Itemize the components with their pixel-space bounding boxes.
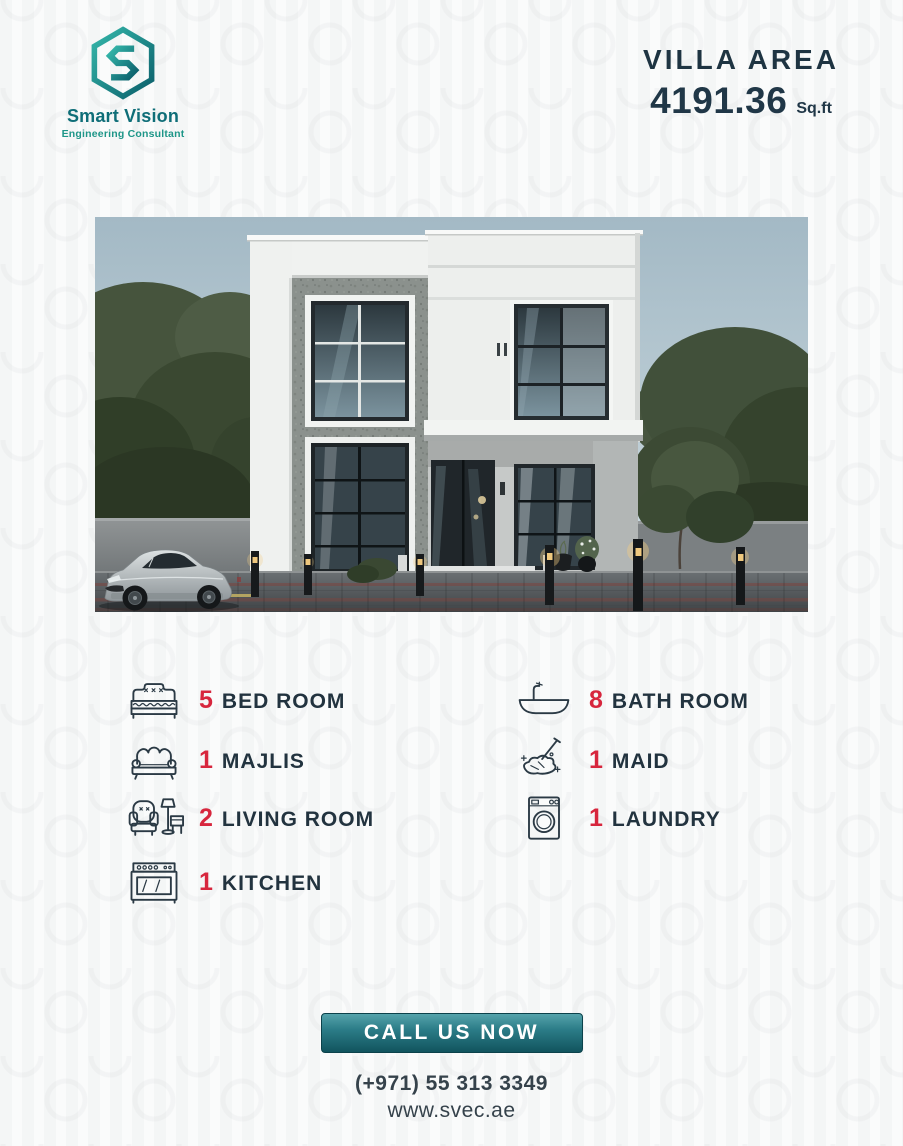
company-logo: Smart Vision Engineering Consultant xyxy=(45,24,201,140)
feature-living-room: 2 LIVING ROOM xyxy=(124,791,374,845)
website-url: www.svec.ae xyxy=(0,1099,903,1123)
villa-area-unit: Sq.ft xyxy=(796,100,832,118)
villa-photo xyxy=(95,217,808,612)
bathtub-icon xyxy=(514,674,574,726)
feature-count: 8 xyxy=(589,686,603,715)
flyer-page: Smart Vision Engineering Consultant VILL… xyxy=(0,0,903,1146)
villa-render xyxy=(95,217,808,612)
feature-kitchen: 1 KITCHEN xyxy=(124,855,322,909)
feature-label: MAID xyxy=(612,750,670,774)
sofa-icon xyxy=(124,734,184,786)
villa-building xyxy=(247,230,643,579)
hexagon-s-logo-icon xyxy=(88,24,158,102)
feature-label: LIVING ROOM xyxy=(222,808,374,832)
feature-label: MAJLIS xyxy=(222,750,305,774)
stove-icon xyxy=(124,856,184,908)
feature-label: KITCHEN xyxy=(222,872,322,896)
phone-number: (+971) 55 313 3349 xyxy=(0,1072,903,1096)
feature-maid: 1 MAID xyxy=(514,733,670,787)
feature-bath-room: 8 BATH ROOM xyxy=(514,673,749,727)
feature-count: 1 xyxy=(589,746,603,775)
bed-icon xyxy=(124,674,184,726)
feature-label: BED ROOM xyxy=(222,690,346,714)
call-us-now-button[interactable]: CALL US NOW xyxy=(321,1013,583,1053)
feature-label: LAUNDRY xyxy=(612,808,721,832)
villa-area-block: VILLA AREA 4191.36 Sq.ft xyxy=(611,44,871,122)
feature-majlis: 1 MAJLIS xyxy=(124,733,305,787)
brand-tagline: Engineering Consultant xyxy=(45,128,201,140)
feature-count: 2 xyxy=(199,804,213,833)
feature-label: BATH ROOM xyxy=(612,690,749,714)
feature-count: 1 xyxy=(199,868,213,897)
villa-area-value: 4191.36 xyxy=(650,80,787,122)
washing-machine-icon xyxy=(514,792,574,844)
villa-area-label: VILLA AREA xyxy=(611,44,871,76)
feature-count: 5 xyxy=(199,686,213,715)
mop-icon xyxy=(514,734,574,786)
entrance-door xyxy=(429,460,497,574)
feature-count: 1 xyxy=(199,746,213,775)
brand-name: Smart Vision xyxy=(45,106,201,127)
armchair-lamp-icon xyxy=(124,792,184,844)
feature-bed-room: 5 BED ROOM xyxy=(124,673,345,727)
feature-laundry: 1 LAUNDRY xyxy=(514,791,721,845)
feature-count: 1 xyxy=(589,804,603,833)
